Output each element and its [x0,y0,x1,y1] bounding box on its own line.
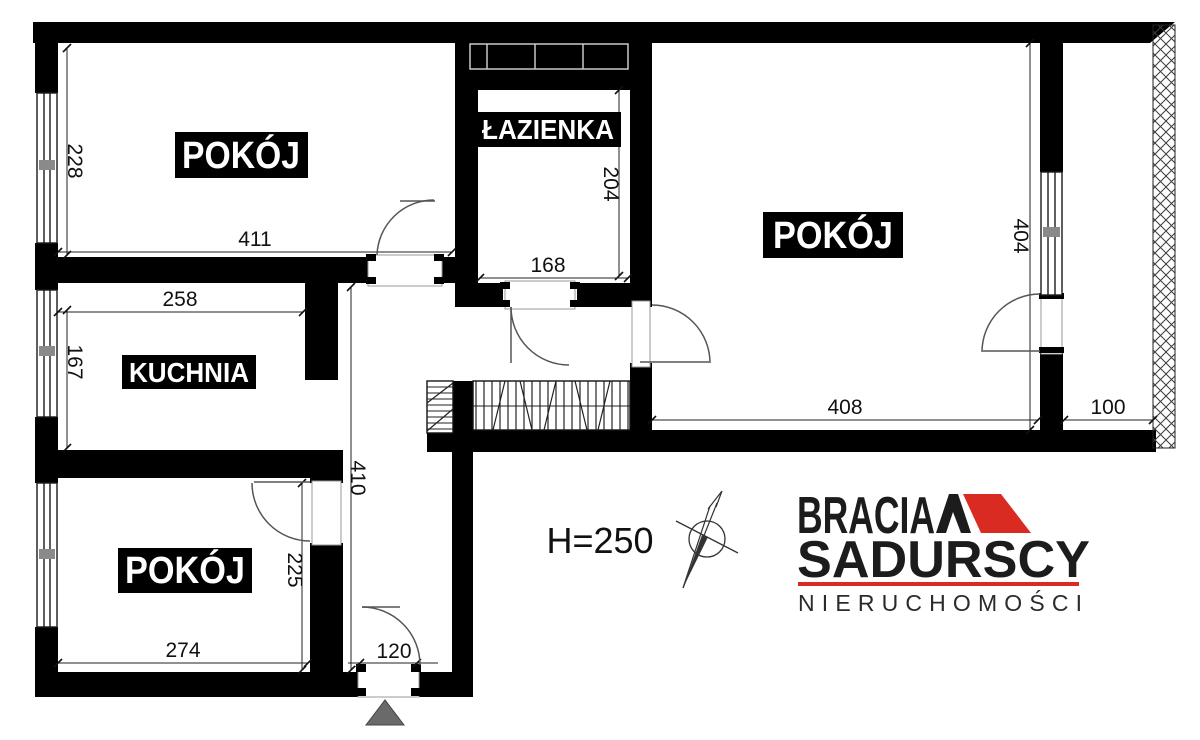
svg-text:KUCHNIA: KUCHNIA [129,357,249,388]
dim-204: 204 [599,166,622,201]
floor-plan-page: 411 228 258 167 204 168 404 408 100 [0,0,1200,740]
adjacent-wall-hatch [1153,25,1175,448]
svg-text:ŁAZIENKA: ŁAZIENKA [482,114,614,145]
dimension-hallway-length: 410 [346,283,369,674]
dimension-room-top-left-width: 411 [54,228,456,256]
dimension-room-bottom-left-width: 274 [54,639,312,667]
dimension-room-top-left-height: 228 [63,44,86,259]
dimension-kitchen-height: 167 [63,306,86,452]
room-label-top-left: POKÓJ [175,132,308,178]
door-room-top-left [377,200,435,255]
dim-228: 228 [63,143,86,178]
room-label-right: POKÓJ [763,212,903,258]
dimension-room-right-width: 408 [648,396,1042,424]
room-label-bathroom: ŁAZIENKA [476,112,621,147]
dim-258: 258 [162,288,197,311]
hall-wardrobe [473,381,630,430]
dim-274: 274 [165,639,200,662]
dimension-bathroom-width: 168 [476,254,632,282]
window-kitchen [37,290,57,417]
dim-100: 100 [1090,396,1125,419]
door-bathroom [511,307,569,365]
dimension-room-right-height: 404 [1009,39,1034,434]
corridor-wardrobe [427,381,453,433]
logo-red-parallelogram-icon [963,494,1031,533]
agency-logo: BRACIA SADURSCY NIERUCHOMOŚCI [797,487,1090,616]
logo-underline [798,582,1079,586]
room-label-bottom-left: POKÓJ [118,548,252,593]
ceiling-height-label: H=250 [546,520,653,561]
dim-410: 410 [346,460,369,495]
dimension-kitchen-width: 258 [54,288,307,316]
door-frames [312,254,1064,697]
window-bottom-left [37,483,57,627]
dimension-balcony-depth: 100 [1060,396,1157,424]
logo-line2: SADURSCY [797,531,1090,589]
logo-line3: NIERUCHOMOŚCI [798,589,1082,616]
dim-168: 168 [530,254,565,277]
svg-text:POKÓJ: POKÓJ [773,213,893,257]
door-room-bottom-left [252,482,310,541]
entrance-marker [366,700,404,725]
door-balcony [982,294,1040,352]
dim-408: 408 [827,396,862,419]
svg-text:POKÓJ: POKÓJ [125,548,245,592]
window-right [1041,172,1062,295]
dimension-room-bottom-left-height: 225 [283,479,306,674]
dimension-entrance-width: 120 [348,640,438,667]
dim-167: 167 [63,344,86,379]
dim-225: 225 [283,552,306,587]
dim-120: 120 [376,640,411,663]
svg-text:POKÓJ: POKÓJ [182,133,300,177]
room-label-kitchen: KUCHNIA [122,355,256,389]
dim-411: 411 [238,228,271,251]
dim-404: 404 [1009,218,1032,253]
floor-plan-canvas: 411 228 258 167 204 168 404 408 100 [0,0,1200,740]
north-arrow-icon [676,491,738,588]
window-top-left [37,93,57,243]
